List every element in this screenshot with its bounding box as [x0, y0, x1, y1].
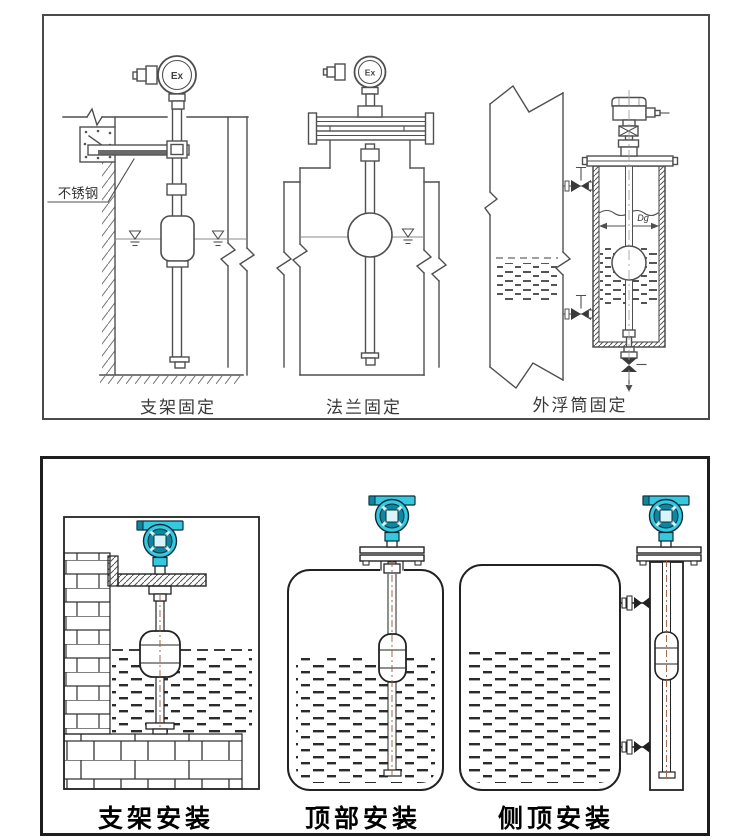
ex-label: Ex [365, 68, 376, 78]
ex-transmitter-head: Ex [324, 57, 386, 118]
pipe-valve-top-icon [620, 596, 650, 610]
fixing-methods-drawing: Ex 不锈钢 [44, 16, 708, 418]
tank-wall-right [221, 117, 254, 375]
transmitter-head-small [612, 98, 669, 157]
pipe-valve-bottom-icon [620, 740, 650, 754]
side-valve-top-icon [563, 168, 593, 193]
stem-end-cap [362, 353, 379, 365]
figure-flange-fixing: Ex [277, 57, 446, 376]
ground [100, 375, 243, 384]
liquid [296, 657, 435, 783]
svg-text:不锈钢: 不锈钢 [58, 186, 99, 201]
float-capsule [379, 634, 406, 682]
caption-top-install: 顶部安装 [305, 799, 421, 835]
side-valve-bottom-icon [563, 296, 593, 321]
caption-bracket-fixing: 支架固定 [140, 393, 216, 418]
stem-end-cap [170, 357, 189, 368]
installation-diagram-page: Ex 不锈钢 [0, 0, 750, 840]
ceiling-line [63, 109, 248, 127]
figure-external-chamber-fixing: Dg [485, 86, 678, 392]
caption-external-chamber-fixing: 外浮筒固定 [533, 391, 628, 416]
transmitter-head [369, 496, 415, 541]
figure-bracket-install [64, 517, 259, 789]
vessel-liquid [496, 258, 558, 301]
install-methods-drawing [43, 459, 707, 831]
ex-label: Ex [171, 71, 184, 82]
wall-cap [108, 556, 118, 586]
ex-transmitter-head: Ex [133, 56, 196, 109]
caption-flange-fixing: 法兰固定 [326, 393, 402, 418]
float [161, 216, 194, 267]
vessel-column [485, 86, 570, 388]
drain-valve-icon [621, 347, 646, 392]
tank-walls [277, 140, 446, 375]
transmitter-head [643, 496, 689, 541]
head-stub [155, 566, 165, 574]
support-arm [118, 574, 206, 586]
figure-top-install [288, 496, 443, 790]
figure-side-top-install [460, 496, 701, 790]
svg-text:Dg: Dg [637, 213, 649, 223]
brick-floor [64, 734, 242, 789]
stem-collar [149, 586, 171, 594]
liquid [468, 652, 612, 783]
caption-bracket-install: 支架安装 [98, 799, 214, 835]
brick-wall [64, 553, 110, 734]
float-ball [348, 213, 392, 257]
figure-bracket-fixing: Ex 不锈钢 [48, 56, 254, 384]
caption-side-top-install: 侧顶安装 [498, 799, 614, 835]
material-label: 不锈钢 [48, 159, 134, 202]
liquid [112, 650, 252, 733]
chamber-flange [583, 156, 678, 166]
